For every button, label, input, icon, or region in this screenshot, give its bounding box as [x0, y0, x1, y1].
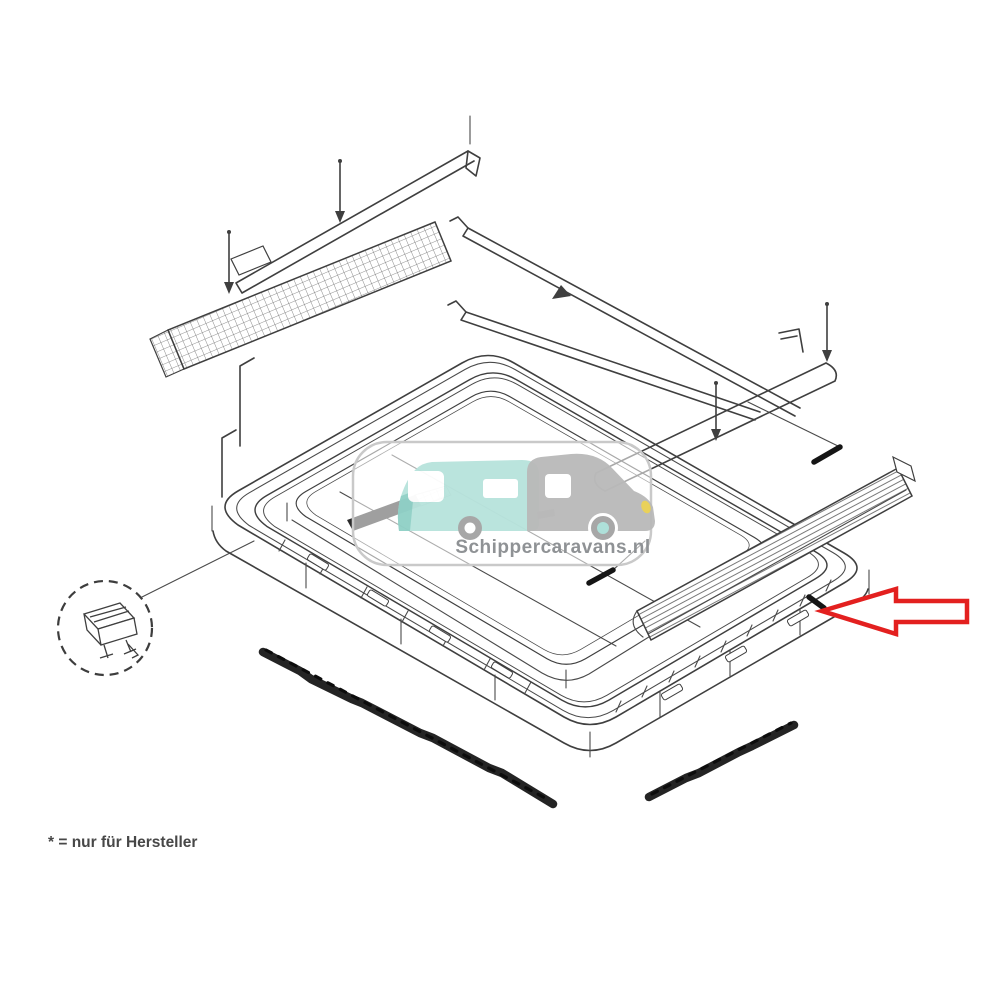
direction-arrowhead	[552, 285, 571, 299]
left-hook-1	[240, 358, 254, 446]
red-arrow	[822, 589, 967, 634]
guide-rails	[448, 217, 803, 420]
watermark: Schippercaravans.nl	[353, 442, 655, 565]
rail-notch	[231, 246, 271, 275]
angled-screw-2	[748, 402, 840, 462]
top-left-assembly	[150, 116, 480, 377]
screw-3	[822, 302, 832, 362]
guide-rail-upper	[450, 217, 800, 416]
exploded-diagram: Schippercaravans.nl * = nur für Herstell…	[0, 0, 1000, 1000]
screw-4	[711, 381, 721, 441]
left-hook-2	[222, 430, 236, 497]
footnote-text: * = nur für Hersteller	[48, 834, 197, 851]
watermark-text: Schippercaravans.nl	[455, 537, 650, 558]
callout-leader-line	[142, 541, 254, 597]
detail-callout	[58, 541, 254, 675]
mounting-clip	[84, 603, 138, 658]
screw-1	[335, 159, 345, 223]
z-bracket	[779, 329, 803, 352]
parts-diagram-image: Schippercaravans.nl * = nur für Herstell…	[0, 0, 1000, 1000]
seal-strip-short	[649, 723, 794, 797]
textured-rail-top-left	[150, 222, 451, 377]
